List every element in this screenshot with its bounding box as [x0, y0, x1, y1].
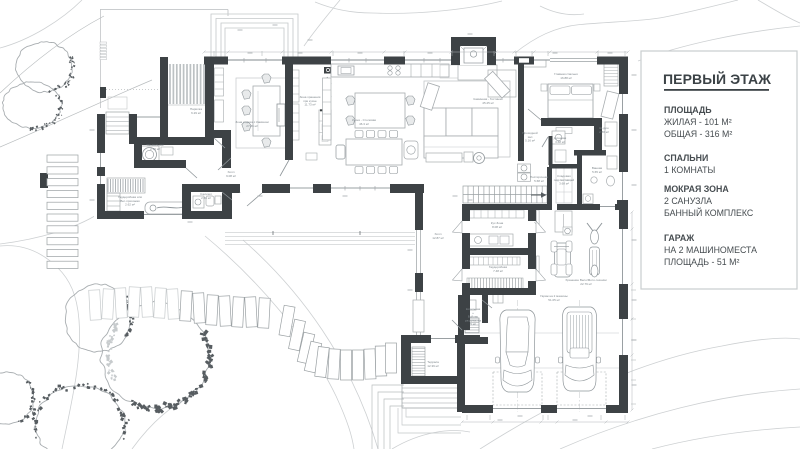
svg-text:Холл9.08 м²: Холл9.08 м² [226, 170, 236, 178]
svg-text:НА 2 МАШИНОМЕСТА: НА 2 МАШИНОМЕСТА [664, 245, 757, 255]
svg-text:1 КОМНАТЫ: 1 КОМНАТЫ [664, 165, 715, 175]
svg-text:Ванная5.65 м²: Ванная5.65 м² [592, 166, 603, 174]
svg-text:Кух.Зона8.08 м²: Кух.Зона8.08 м² [491, 221, 504, 229]
svg-text:ГАРАЖ: ГАРАЖ [664, 233, 694, 243]
svg-text:Ш-душ2.56 м²: Ш-душ2.56 м² [599, 126, 609, 134]
svg-text:ПЕРВЫЙ ЭТАЖ: ПЕРВЫЙ ЭТАЖ [663, 70, 771, 87]
svg-text:Санузел2.56 м²: Санузел2.56 м² [200, 192, 212, 200]
svg-text:2 САНУЗЛА: 2 САНУЗЛА [664, 196, 712, 206]
svg-text:ЖИЛАЯ - 101 М²: ЖИЛАЯ - 101 М² [664, 117, 732, 127]
svg-text:Душевая3.68 м²: Душевая3.68 м² [554, 136, 567, 144]
svg-text:Терраса12.39 м²: Терраса12.39 м² [427, 360, 439, 368]
svg-text:ОБЩАЯ - 316 М²: ОБЩАЯ - 316 М² [664, 129, 732, 139]
svg-text:ПЛОЩАДЬ: ПЛОЩАДЬ [664, 105, 712, 115]
svg-text:ПЛОЩАДЬ - 51 М²: ПЛОЩАДЬ - 51 М² [664, 257, 739, 267]
svg-text:Парилка6.29 м²: Парилка6.29 м² [190, 107, 202, 115]
svg-text:СПАЛЬНИ: СПАЛЬНИ [664, 153, 708, 163]
svg-text:БАННЫЙ КОМПЛЕКС: БАННЫЙ КОМПЛЕКС [664, 207, 754, 218]
svg-text:МОКРАЯ ЗОНА: МОКРАЯ ЗОНА [664, 184, 729, 194]
